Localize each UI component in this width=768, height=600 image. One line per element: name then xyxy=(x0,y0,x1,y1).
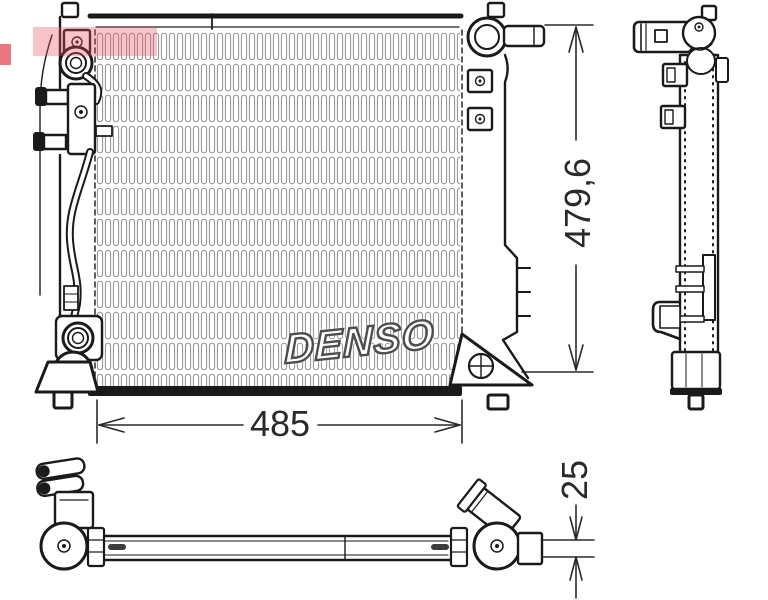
product-technical-drawing: DENSO 485 479,6 25 xyxy=(0,0,768,600)
bottom-left-fitting xyxy=(34,457,104,569)
radiator-side-view xyxy=(634,6,728,409)
height-dimension-label: 479,6 xyxy=(558,143,598,263)
radiator-bottom-view xyxy=(34,457,542,569)
front-right-tank xyxy=(450,3,544,409)
brand-watermark-fragment xyxy=(0,44,11,65)
depth-dimension xyxy=(543,505,594,598)
bottom-right-fitting xyxy=(451,479,542,569)
brand-watermark-band xyxy=(33,27,157,56)
width-dimension-label: 485 xyxy=(240,403,320,445)
radiator-line-art xyxy=(0,0,768,600)
depth-dimension-label: 25 xyxy=(555,450,595,510)
